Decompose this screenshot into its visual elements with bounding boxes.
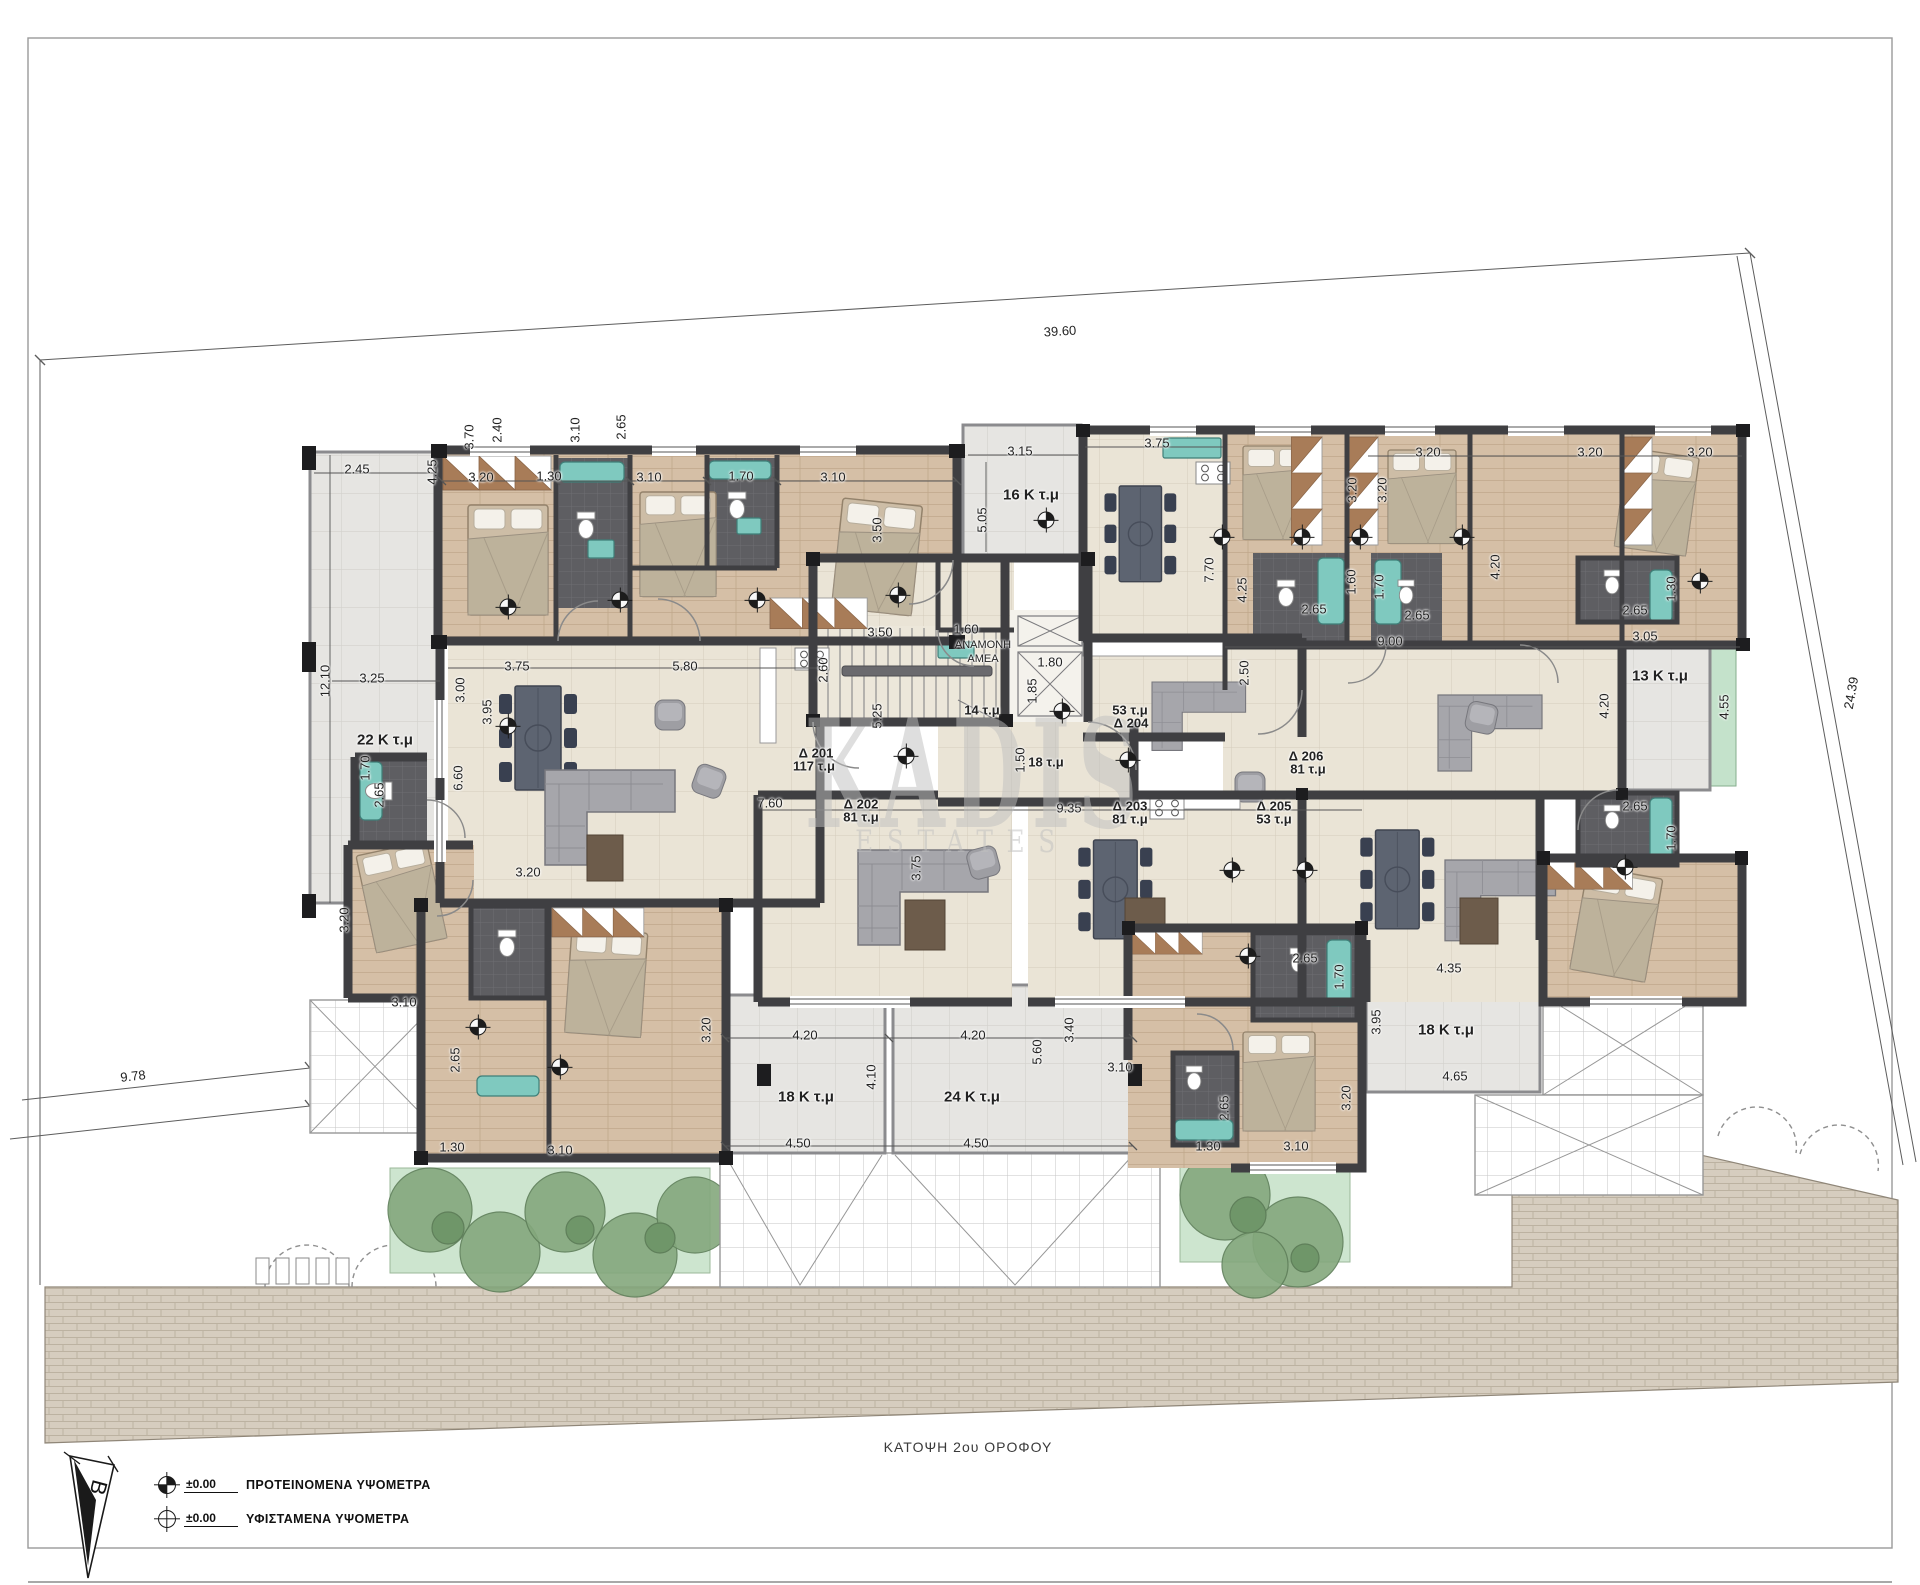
north-arrow-icon: B	[58, 1448, 128, 1583]
legend-row-proposed: ±0.00 ΠΡΟΤΕΙΝΟΜΕΝΑ ΥΨΟΜΕΤΡΑ	[158, 1476, 431, 1494]
entrance-posts	[256, 1258, 349, 1284]
legend-value: ±0.00	[184, 1477, 238, 1493]
legend-value: ±0.00	[184, 1511, 238, 1527]
legend: B ±0.00 ΠΡΟΤΕΙΝΟΜΕΝΑ ΥΨΟΜΕΤΡΑ ±0.00 ΥΦΙΣ…	[58, 1448, 478, 1578]
legend-label: ΠΡΟΤΕΙΝΟΜΕΝΑ ΥΨΟΜΕΤΡΑ	[246, 1478, 431, 1492]
drawing-title: ΚΑΤΟΨΗ 2ου ΟΡΟΦΟΥ	[884, 1439, 1053, 1455]
legend-label: ΥΦΙΣΤΑΜΕΝΑ ΥΨΟΜΕΤΡΑ	[246, 1512, 409, 1526]
floor-plan-canvas	[0, 0, 1920, 1585]
existing-elevation-marker-icon	[158, 1510, 176, 1528]
drawing-sheet: KADIS ESTATES 39.6024.399.782.4512.103.2…	[0, 0, 1920, 1585]
proposed-elevation-marker-icon	[158, 1476, 176, 1494]
legend-row-existing: ±0.00 ΥΦΙΣΤΑΜΕΝΑ ΥΨΟΜΕΤΡΑ	[158, 1510, 409, 1528]
side-planter	[1710, 628, 1736, 786]
